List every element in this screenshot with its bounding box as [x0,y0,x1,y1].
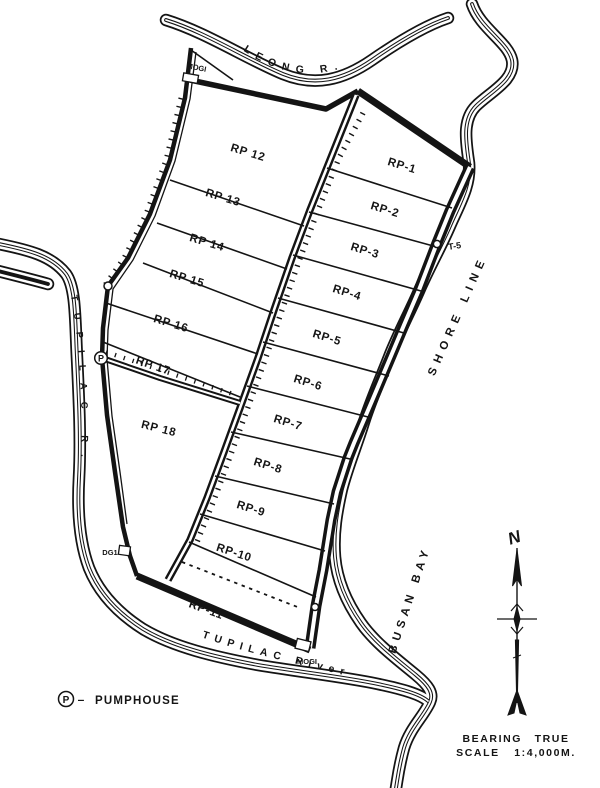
pumphouse-marker-letter: P [98,354,104,364]
divider-rp3-rp4 [293,255,421,291]
parcel-label-rp3: RP-3 [349,241,381,261]
compass-tail-barb-right [517,690,526,715]
parcel-dividers [103,168,452,597]
scale-note: SCALE 1:4,000M. [456,747,576,759]
divider-rp7-rp8 [231,432,350,459]
mogi-bottom-label: MOGI [297,657,317,666]
parcel-label-rp2: RP-2 [369,200,401,220]
bend-survey-point [104,282,112,290]
t5-label: T-5 [447,240,461,252]
parcel-label-rp8: RP-8 [252,456,284,476]
legend: P – PUMPHOUSE [59,692,180,708]
leong-river-label: LEONG R. [241,43,345,76]
parcel-label-rp4: RP-4 [331,283,363,303]
divider-rp8-rp9 [215,476,334,504]
divider-rp6-rp7 [247,386,368,417]
svg-text:BUSAN BAY: BUSAN BAY [387,545,433,655]
compass-north-label: N [506,527,524,549]
parcel-label-rp18: RP 18 [140,419,178,439]
svg-text:LEONG R.: LEONG R. [241,43,345,76]
t5-survey-point [433,240,440,247]
gate-marker-northwest [182,73,198,83]
compass-cross-diamond [514,607,520,631]
northeast-boundary [358,91,470,167]
busan-bay-label: BUSAN BAY [387,545,433,655]
divider-rp2-rp3 [309,212,437,247]
legend-separator: – [78,693,85,707]
divider-rp4-rp5 [278,298,404,333]
se-survey-point [312,604,319,611]
divider-rp16-rp17 [103,342,240,397]
legend-pump-letter: P [63,695,70,706]
map-notes: BEARING TRUE SCALE 1:4,000M. [456,733,576,759]
rivers [0,4,512,788]
parcel-label-rp7: RP-7 [272,413,304,433]
west-boundary-inner-line [107,52,196,524]
parcel-label-rp16: RP 16 [152,313,190,335]
parcel-label-rp9: RP-9 [235,499,267,519]
parcel-label-rp1: RP-1 [386,156,418,176]
rp17-road-gap [102,358,240,403]
parcel-label-rp6: RP-6 [292,373,324,393]
legend-pumphouse-label: PUMPHOUSE [95,695,180,707]
plot-map: P RP 12 RP 13 RP 14 RP 15 RP 16 RP 17 RP… [0,0,600,788]
divider-rp14-rp15 [143,263,273,313]
divider-rp10-rp11 [189,542,316,597]
gate-marker-dg1 [118,545,130,555]
parcel-label-rp15: RP 15 [168,268,206,290]
divider-rp1-rp2 [327,168,452,208]
divider-rp5-rp6 [263,342,389,376]
dg1-label: DG1 [102,548,117,557]
parcel-label-rp5: RP-5 [311,328,343,348]
ticks-rp17-road [106,352,236,395]
compass-tail-barb-left [508,690,517,715]
ticks-west-boundary [105,98,181,285]
compass-rose: N [497,527,537,715]
shore-line-label: SHORE LINE [426,254,490,378]
west-boundary [102,48,191,576]
compass-tail-taper [515,640,518,692]
parcel-label-rp12: RP 12 [229,142,267,164]
parcel-label-rp13: RP 13 [204,187,242,209]
bearing-note: BEARING TRUE [462,733,569,745]
svg-text:SHORE LINE: SHORE LINE [426,254,490,378]
parcel-label-rp14: RP 14 [188,232,226,254]
